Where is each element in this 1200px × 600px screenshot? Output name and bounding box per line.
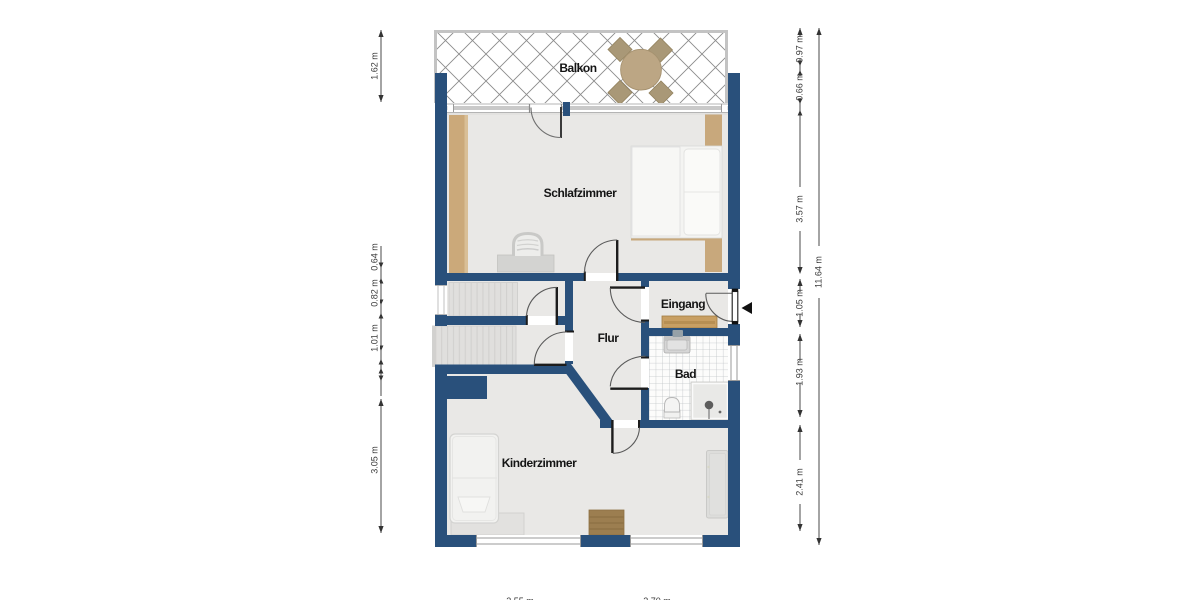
svg-text:0.66 m: 0.66 m [795,73,805,101]
svg-text:Kinderzimmer: Kinderzimmer [502,456,577,470]
svg-text:1.05 m: 1.05 m [795,289,805,317]
svg-text:11.64 m: 11.64 m [814,256,824,288]
svg-text:2.55 m: 2.55 m [506,596,534,600]
svg-text:1.01 m: 1.01 m [370,324,380,352]
svg-text:1.93 m: 1.93 m [795,358,805,386]
svg-text:Flur: Flur [598,331,620,345]
svg-text:0.82 m: 0.82 m [370,279,380,307]
svg-text:Bad: Bad [675,367,696,381]
svg-text:1.62 m: 1.62 m [370,52,380,80]
svg-text:3.05 m: 3.05 m [370,446,380,474]
svg-text:2.70 m: 2.70 m [643,596,671,600]
svg-text:0.64 m: 0.64 m [370,243,380,271]
svg-text:2.41 m: 2.41 m [795,468,805,496]
svg-text:0.97 m: 0.97 m [795,35,805,63]
svg-text:Schlafzimmer: Schlafzimmer [544,186,617,200]
svg-text:Balkon: Balkon [559,61,596,75]
svg-text:Eingang: Eingang [661,297,705,311]
svg-text:3.57 m: 3.57 m [795,195,805,223]
